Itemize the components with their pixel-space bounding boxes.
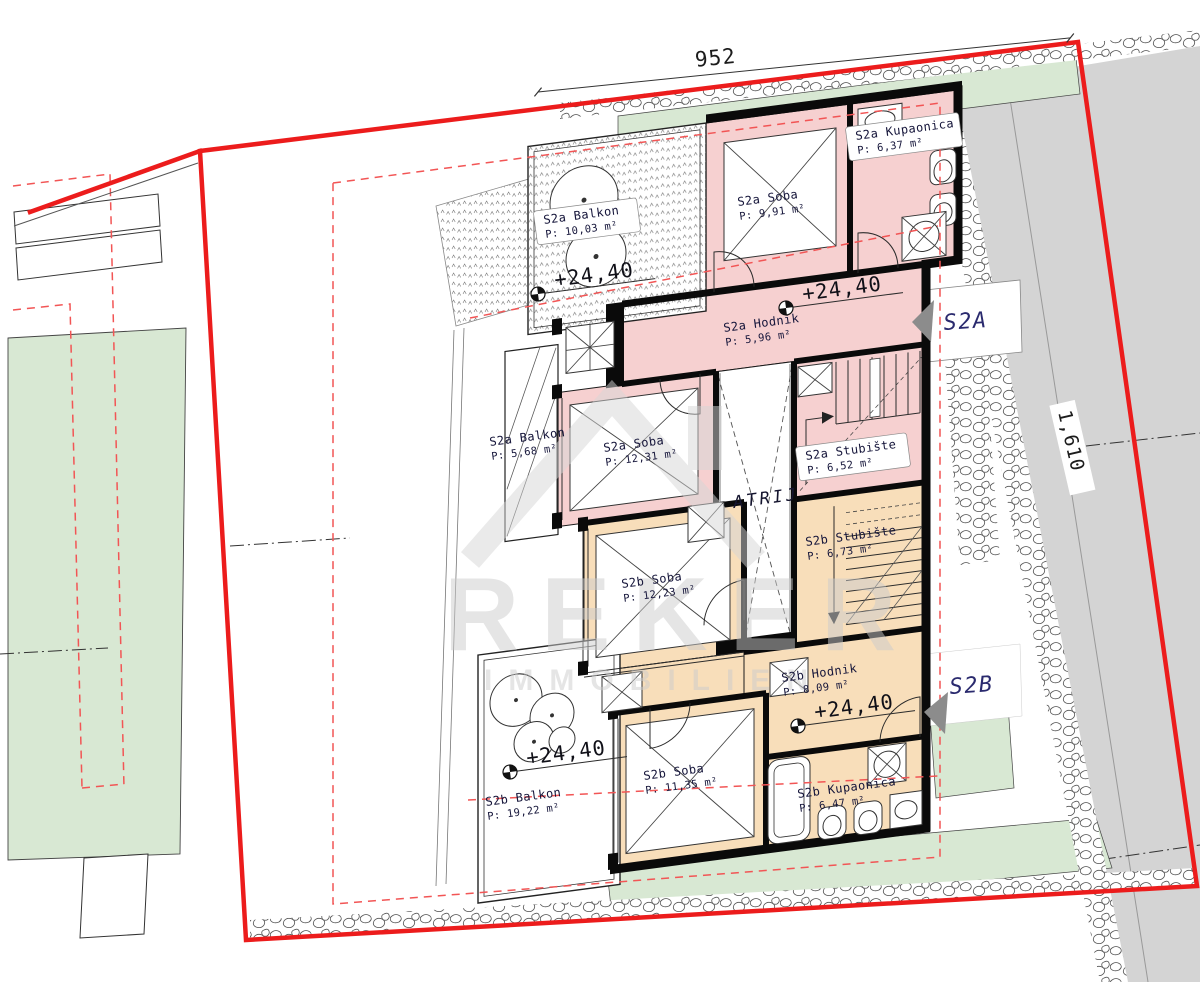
outbuilding-3 [80,854,148,938]
svg-text:S2B: S2B [949,672,995,700]
svg-text:S2A: S2A [943,308,989,336]
shaft-icon [798,362,832,396]
unit-marker-s2b: S2B [949,672,995,700]
watermark-sub: IMMOBILIEN [484,664,824,697]
dimension-top-value: 952 [694,44,737,72]
site-plan-drawing: REKER IMMOBILIEN 952 1,610 S2a Kupaonica… [0,0,1200,982]
floor-plan-page: REKER IMMOBILIEN 952 1,610 S2a Kupaonica… [0,0,1200,982]
unit-marker-s2a: S2A [943,308,989,336]
shaft-icon [566,321,614,373]
lawn-area [8,328,186,860]
